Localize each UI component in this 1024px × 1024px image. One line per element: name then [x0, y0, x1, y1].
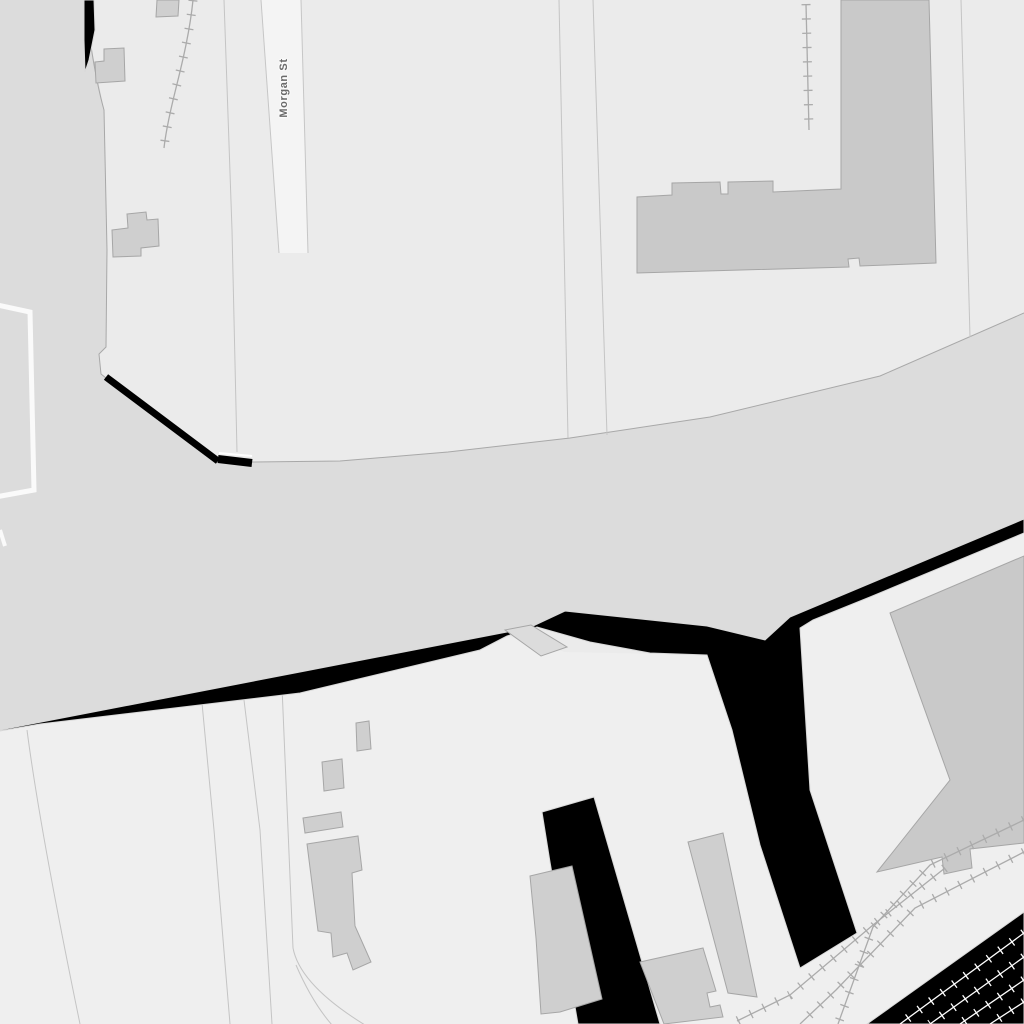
black-embankment-bar — [218, 459, 252, 463]
street-label-morgan-st: Morgan St — [278, 58, 290, 117]
map-canvas[interactable]: Morgan St — [0, 0, 1024, 1024]
building — [356, 721, 371, 751]
building — [156, 0, 179, 17]
map-svg — [0, 0, 1024, 1024]
building — [322, 759, 344, 791]
